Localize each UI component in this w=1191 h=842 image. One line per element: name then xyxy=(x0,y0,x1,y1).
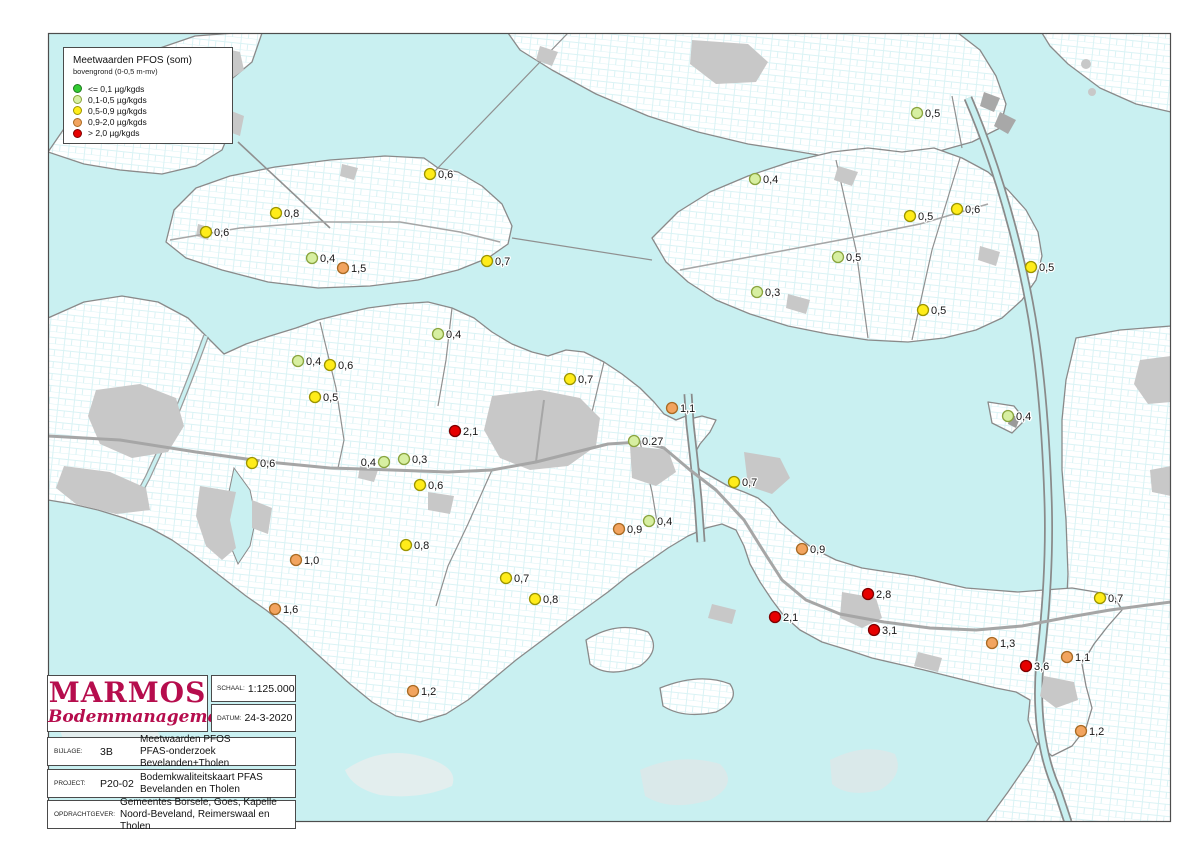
point-value-label: 0,7 xyxy=(578,374,593,386)
measurement-point[interactable]: 0,5 xyxy=(912,108,941,121)
point-value-label: 0,5 xyxy=(323,392,338,404)
point-marker-icon[interactable] xyxy=(770,612,781,623)
measurement-point[interactable]: 2,1 xyxy=(450,426,479,439)
point-value-label: 0,6 xyxy=(438,169,453,181)
point-marker-icon[interactable] xyxy=(1003,411,1014,422)
point-value-label: 0,7 xyxy=(742,477,757,489)
measurement-point[interactable]: 0,6 xyxy=(425,169,454,182)
appendix-row: BIJLAGE: 3B Meetwaarden PFOS PFAS-onderz… xyxy=(47,737,296,766)
measurement-point[interactable]: 1,2 xyxy=(1076,726,1105,739)
appendix-label: BIJLAGE: xyxy=(54,748,100,755)
measurement-point[interactable]: 0,5 xyxy=(833,252,862,265)
point-marker-icon[interactable] xyxy=(952,204,963,215)
client-label: OPDRACHTGEVER: xyxy=(54,811,120,818)
measurement-point[interactable]: 0,6 xyxy=(415,480,444,493)
point-value-label: 1,2 xyxy=(1089,726,1104,738)
measurement-point[interactable]: 3,6 xyxy=(1021,661,1050,674)
measurement-point[interactable]: 0,5 xyxy=(1026,262,1055,275)
point-marker-icon[interactable] xyxy=(247,458,258,469)
measurement-point[interactable]: 0,4 xyxy=(307,253,336,266)
point-value-label: 3,6 xyxy=(1034,661,1049,673)
point-value-label: 0,5 xyxy=(1039,262,1054,274)
point-value-label: 0,6 xyxy=(965,204,980,216)
measurement-point[interactable]: 0,3 xyxy=(399,454,428,467)
measurement-point[interactable]: 0,9 xyxy=(614,524,643,537)
legend-item: 0,5-0,9 µg/kgds xyxy=(73,105,223,116)
point-marker-icon[interactable] xyxy=(1076,726,1087,737)
point-value-label: 0,4 xyxy=(320,253,335,265)
point-marker-icon[interactable] xyxy=(270,604,281,615)
measurement-point[interactable]: 0,4 xyxy=(293,356,322,369)
point-marker-icon[interactable] xyxy=(1062,652,1073,663)
project-description: Bodemkwaliteitskaart PFAS Bevelanden en … xyxy=(140,772,263,796)
point-value-label: 2,1 xyxy=(463,426,478,438)
client-row: OPDRACHTGEVER: Gemeentes Borsele, Goes, … xyxy=(47,800,296,829)
legend-subtitle: bovengrond (0-0,5 m-mv) xyxy=(73,67,223,76)
point-value-label: 1,5 xyxy=(351,263,366,275)
company-name: MARMOS xyxy=(48,678,207,708)
point-marker-icon[interactable] xyxy=(307,253,318,264)
point-marker-icon[interactable] xyxy=(614,524,625,535)
point-marker-icon[interactable] xyxy=(797,544,808,555)
legend-item-label: > 2,0 µg/kgds xyxy=(88,128,139,138)
measurement-point[interactable]: 1,6 xyxy=(270,604,299,617)
point-value-label: 1,2 xyxy=(421,686,436,698)
measurement-point[interactable]: 2,1 xyxy=(770,612,799,625)
company-subtitle: Bodemmanagement xyxy=(48,708,207,727)
measurement-point[interactable]: 0,6 xyxy=(325,360,354,373)
scale-value: 1:125.000 xyxy=(248,683,295,695)
legend-item: <= 0,1 µg/kgds xyxy=(73,83,223,94)
point-value-label: 0,6 xyxy=(214,227,229,239)
point-value-label: 1,0 xyxy=(304,555,319,567)
point-value-label: 2,8 xyxy=(876,589,891,601)
measurement-point[interactable]: 1,0 xyxy=(291,555,320,568)
point-marker-icon[interactable] xyxy=(729,477,740,488)
point-value-label: 0.27 xyxy=(642,436,663,448)
legend-item-label: 0,9-2,0 µg/kgds xyxy=(88,117,147,127)
legend-swatch-green-icon xyxy=(73,84,82,93)
measurement-point[interactable]: 0,4 xyxy=(361,457,390,470)
point-marker-icon[interactable] xyxy=(565,374,576,385)
measurement-point[interactable]: 0,4 xyxy=(1003,411,1032,424)
measurement-point[interactable]: 1,2 xyxy=(408,686,437,699)
measurement-point[interactable]: 0,8 xyxy=(401,540,430,553)
point-marker-icon[interactable] xyxy=(450,426,461,437)
measurement-point[interactable]: 0,5 xyxy=(905,211,934,224)
point-value-label: 0,5 xyxy=(918,211,933,223)
measurement-point[interactable]: 1,1 xyxy=(1062,652,1091,665)
measurement-point[interactable]: 0,4 xyxy=(644,516,673,529)
point-marker-icon[interactable] xyxy=(869,625,880,636)
measurement-point[interactable]: 0,4 xyxy=(750,174,779,187)
measurement-point[interactable]: 0,7 xyxy=(729,477,758,490)
scale-label: SCHAAL: xyxy=(217,685,245,692)
point-marker-icon[interactable] xyxy=(987,638,998,649)
point-value-label: 1,6 xyxy=(283,604,298,616)
point-value-label: 0,6 xyxy=(338,360,353,372)
point-value-label: 1,1 xyxy=(1075,652,1090,664)
point-value-label: 0,3 xyxy=(412,454,427,466)
point-marker-icon[interactable] xyxy=(863,589,874,600)
point-value-label: 0,4 xyxy=(361,457,376,469)
company-logo-box: MARMOS Bodemmanagement xyxy=(47,675,208,732)
legend-swatch-red-icon xyxy=(73,129,82,138)
measurement-point[interactable]: 1,1 xyxy=(667,403,696,416)
legend-item: > 2,0 µg/kgds xyxy=(73,128,223,139)
appendix-value: 3B xyxy=(100,746,140,758)
point-marker-icon[interactable] xyxy=(629,436,640,447)
point-marker-icon[interactable] xyxy=(905,211,916,222)
point-marker-icon[interactable] xyxy=(293,356,304,367)
measurement-point[interactable]: 0,6 xyxy=(247,458,276,471)
legend-item-label: 0,5-0,9 µg/kgds xyxy=(88,106,147,116)
measurement-point[interactable]: 0,4 xyxy=(433,329,462,342)
measurement-point[interactable]: 2,8 xyxy=(863,589,892,602)
project-label: PROJECT: xyxy=(54,780,100,787)
legend-item-label: 0,1-0,5 µg/kgds xyxy=(88,95,147,105)
point-marker-icon[interactable] xyxy=(310,392,321,403)
point-marker-icon[interactable] xyxy=(833,252,844,263)
measurement-point[interactable]: 0,8 xyxy=(271,208,300,221)
point-value-label: 3,1 xyxy=(882,625,897,637)
measurement-point[interactable]: 1,5 xyxy=(338,263,367,276)
point-marker-icon[interactable] xyxy=(291,555,302,566)
point-marker-icon[interactable] xyxy=(408,686,419,697)
point-marker-icon[interactable] xyxy=(1026,262,1037,273)
point-value-label: 2,1 xyxy=(783,612,798,624)
point-value-label: 0,4 xyxy=(446,329,461,341)
point-marker-icon[interactable] xyxy=(415,480,426,491)
point-marker-icon[interactable] xyxy=(752,287,763,298)
legend-box: Meetwaarden PFOS (som) bovengrond (0-0,5… xyxy=(63,47,233,144)
measurement-point[interactable]: 0,6 xyxy=(952,204,981,217)
point-value-label: 0,6 xyxy=(260,458,275,470)
point-marker-icon[interactable] xyxy=(1021,661,1032,672)
point-value-label: 1,3 xyxy=(1000,638,1015,650)
point-value-label: 0,5 xyxy=(931,305,946,317)
measurement-point[interactable]: 0,5 xyxy=(918,305,947,318)
date-box: DATUM: 24-3-2020 xyxy=(211,704,296,732)
legend-swatch-lightgreen-icon xyxy=(73,95,82,104)
measurement-point[interactable]: 0,7 xyxy=(1095,593,1124,606)
project-row: PROJECT: P20-02 Bodemkwaliteitskaart PFA… xyxy=(47,769,296,798)
legend-swatch-orange-icon xyxy=(73,118,82,127)
measurement-point[interactable]: 0,7 xyxy=(565,374,594,387)
point-value-label: 0,8 xyxy=(414,540,429,552)
measurement-point[interactable]: 1,3 xyxy=(987,638,1016,651)
point-marker-icon[interactable] xyxy=(644,516,655,527)
point-marker-icon[interactable] xyxy=(271,208,282,219)
point-marker-icon[interactable] xyxy=(1095,593,1106,604)
islet-2 xyxy=(660,679,733,715)
scale-box: SCHAAL: 1:125.000 xyxy=(211,675,296,702)
point-marker-icon[interactable] xyxy=(325,360,336,371)
point-value-label: 0,9 xyxy=(810,544,825,556)
point-marker-icon[interactable] xyxy=(482,256,493,267)
legend-title: Meetwaarden PFOS (som) xyxy=(73,55,223,67)
map-sheet: { "legend": { "title": "Meetwaarden PFOS… xyxy=(0,0,1191,842)
point-value-label: 0,8 xyxy=(284,208,299,220)
measurement-point[interactable]: 0,7 xyxy=(501,573,530,586)
measurement-point[interactable]: 0,9 xyxy=(797,544,826,557)
point-marker-icon[interactable] xyxy=(201,227,212,238)
project-value: P20-02 xyxy=(100,778,140,790)
measurement-point[interactable]: 0,3 xyxy=(752,287,781,300)
date-label: DATUM: xyxy=(217,715,241,722)
measurement-point[interactable]: 0,7 xyxy=(482,256,511,269)
point-marker-icon[interactable] xyxy=(667,403,678,414)
point-marker-icon[interactable] xyxy=(425,169,436,180)
point-value-label: 0,9 xyxy=(627,524,642,536)
point-value-label: 0,4 xyxy=(1016,411,1031,423)
point-value-label: 0,4 xyxy=(306,356,321,368)
measurement-point[interactable]: 0,6 xyxy=(201,227,230,240)
point-value-label: 1,1 xyxy=(680,403,695,415)
measurement-point[interactable]: 3,1 xyxy=(869,625,898,638)
point-value-label: 0,4 xyxy=(657,516,672,528)
point-value-label: 0,7 xyxy=(514,573,529,585)
measurement-point[interactable]: 0,8 xyxy=(530,594,559,607)
legend-item-label: <= 0,1 µg/kgds xyxy=(88,84,144,94)
legend-item: 0,1-0,5 µg/kgds xyxy=(73,94,223,105)
point-value-label: 0,5 xyxy=(846,252,861,264)
appendix-description: Meetwaarden PFOS PFAS-onderzoek Beveland… xyxy=(140,734,295,770)
point-marker-icon[interactable] xyxy=(912,108,923,119)
point-marker-icon[interactable] xyxy=(750,174,761,185)
point-value-label: 0,5 xyxy=(925,108,940,120)
point-value-label: 0,7 xyxy=(1108,593,1123,605)
point-marker-icon[interactable] xyxy=(918,305,929,316)
point-marker-icon[interactable] xyxy=(401,540,412,551)
point-marker-icon[interactable] xyxy=(379,457,390,468)
measurement-point[interactable]: 0.27 xyxy=(629,436,664,449)
point-value-label: 0,8 xyxy=(543,594,558,606)
point-marker-icon[interactable] xyxy=(399,454,410,465)
date-value: 24-3-2020 xyxy=(244,712,292,724)
legend-item: 0,9-2,0 µg/kgds xyxy=(73,117,223,128)
point-marker-icon[interactable] xyxy=(338,263,349,274)
point-value-label: 0,4 xyxy=(763,174,778,186)
point-value-label: 0,6 xyxy=(428,480,443,492)
point-value-label: 0,3 xyxy=(765,287,780,299)
measurement-point[interactable]: 0,5 xyxy=(310,392,339,405)
client-description: Gemeentes Borsele, Goes, Kapelle Noord-B… xyxy=(120,797,295,833)
point-marker-icon[interactable] xyxy=(530,594,541,605)
point-marker-icon[interactable] xyxy=(433,329,444,340)
point-value-label: 0,7 xyxy=(495,256,510,268)
point-marker-icon[interactable] xyxy=(501,573,512,584)
legend-swatch-yellow-icon xyxy=(73,106,82,115)
